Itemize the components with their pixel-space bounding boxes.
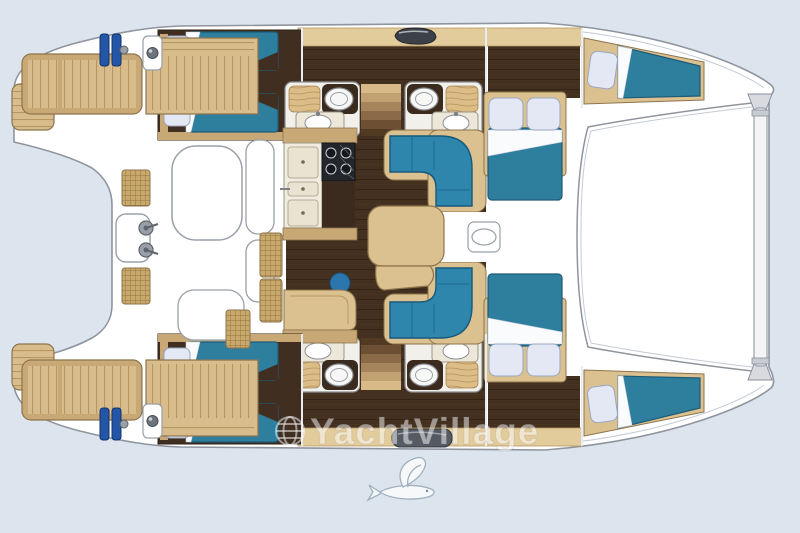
pillow bbox=[527, 98, 560, 130]
galley-trim bbox=[283, 228, 357, 240]
galley-trim bbox=[283, 128, 357, 143]
yacht-floor-plan: YachtVillage bbox=[0, 0, 800, 533]
toilet bbox=[325, 88, 353, 110]
bath-floor-teak bbox=[446, 362, 478, 388]
toilet bbox=[325, 364, 353, 386]
bath-floor-teak bbox=[289, 86, 320, 112]
sink bbox=[443, 343, 469, 359]
stove bbox=[322, 143, 355, 181]
rattan-mat bbox=[226, 310, 250, 348]
watermark: YachtVillage bbox=[276, 411, 539, 452]
faucet bbox=[316, 112, 320, 116]
rattan-seat bbox=[122, 170, 150, 206]
rattan-seat bbox=[122, 268, 150, 304]
transom-fitting-bottom bbox=[143, 404, 162, 438]
saloon-dinette bbox=[368, 130, 500, 344]
forward-cabin-floor-top bbox=[488, 44, 580, 98]
cockpit-table bbox=[172, 146, 242, 240]
galley-cabinet bbox=[322, 181, 355, 228]
sink bbox=[443, 115, 469, 131]
companionway-stairs-bottom bbox=[360, 338, 402, 390]
sink bbox=[305, 343, 331, 359]
galley bbox=[280, 128, 357, 240]
hull-shelf-band-top bbox=[298, 28, 582, 46]
cockpit-bench bbox=[246, 140, 274, 234]
faucet bbox=[454, 112, 458, 116]
watermark-text: YachtVillage bbox=[310, 411, 539, 452]
pillow bbox=[489, 98, 523, 130]
transom-fitting-top bbox=[143, 36, 162, 70]
toilet bbox=[410, 364, 438, 386]
entry-mat bbox=[260, 233, 282, 277]
yacht-floor-plan-page: YachtVillage bbox=[0, 0, 800, 533]
bathroom bbox=[405, 337, 482, 392]
companionway-stairs-top bbox=[360, 84, 402, 136]
toilet bbox=[410, 88, 438, 110]
bathroom bbox=[405, 82, 482, 137]
entry-mat bbox=[260, 279, 282, 322]
deck-hatch-top bbox=[395, 28, 436, 44]
pillow bbox=[587, 50, 619, 89]
forward-double-bed-top bbox=[484, 92, 566, 200]
pillow bbox=[489, 344, 523, 376]
pillow bbox=[587, 384, 619, 423]
saloon-table bbox=[368, 206, 444, 290]
forward-double-bed-bottom bbox=[484, 274, 566, 382]
pillow bbox=[527, 344, 560, 376]
bath-floor-teak bbox=[446, 86, 478, 112]
